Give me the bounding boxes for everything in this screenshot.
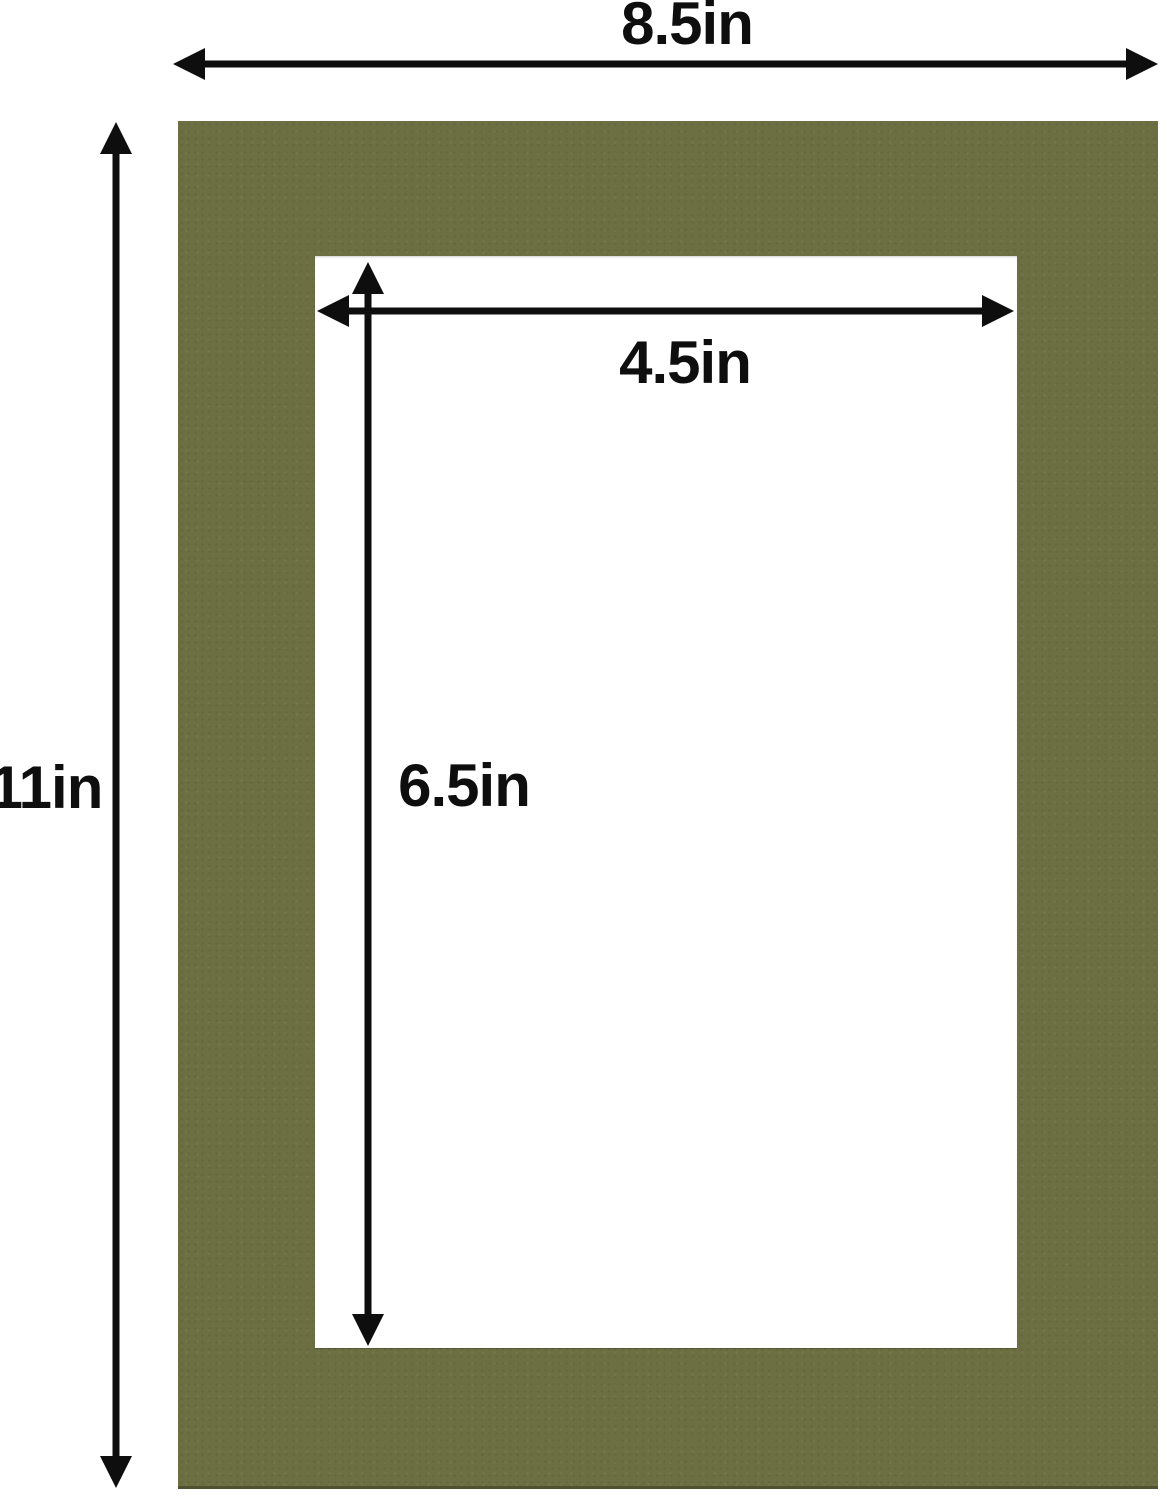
arrowhead-up-icon: [100, 122, 132, 154]
outer-height-label: 11in: [0, 758, 102, 818]
arrowhead-down-icon: [352, 1314, 384, 1346]
mat-dimension-diagram: 8.5in 11in 4.5in 6.5in: [0, 0, 1167, 1500]
arrowhead-left-icon: [317, 295, 349, 327]
outer-height-dimension: [100, 122, 132, 1488]
arrowhead-up-icon: [352, 262, 384, 294]
arrowhead-left-icon: [173, 48, 205, 80]
opening-height-label: 6.5in: [398, 756, 530, 816]
arrowhead-right-icon: [982, 295, 1014, 327]
arrowhead-down-icon: [100, 1456, 132, 1488]
outer-width-label: 8.5in: [621, 0, 753, 54]
opening-width-label: 4.5in: [619, 333, 751, 393]
arrowhead-right-icon: [1126, 48, 1158, 80]
opening-width-dimension: [317, 295, 1014, 327]
dimension-annotations: [0, 0, 1167, 1500]
opening-height-dimension: [352, 262, 384, 1346]
